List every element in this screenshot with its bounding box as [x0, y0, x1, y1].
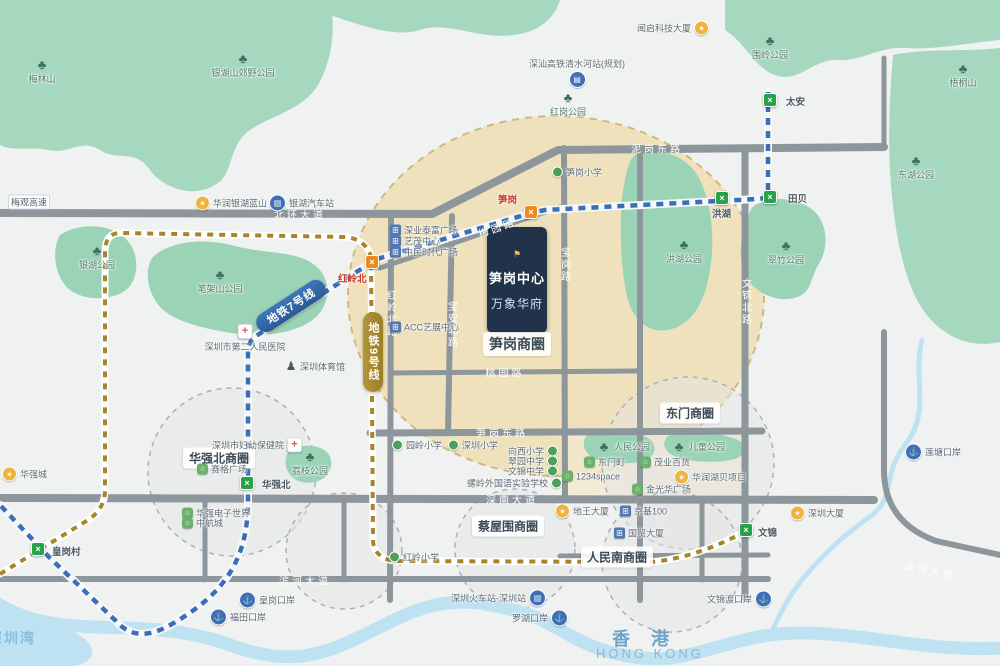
poi-shop: ⌂1234space — [562, 471, 620, 482]
metro-station-label: 笋岗 — [498, 192, 517, 206]
poi-label: 梅林山 — [28, 72, 55, 85]
district-label: 蔡屋围商圈 — [472, 516, 544, 537]
poi-tree: ♣围岭公园 — [752, 33, 788, 61]
poi-port: ⚓福田口岸 — [210, 609, 266, 626]
poi-label: 华润银湖蓝山 — [213, 197, 267, 210]
metro-station-label: 红岭北 — [338, 271, 367, 285]
yellow-icon: ★ — [555, 504, 570, 519]
building-icon: ⊞ — [614, 528, 625, 539]
poi-label: 深圳火车站-深圳站 — [451, 592, 526, 605]
poi-label: 东湖公园 — [898, 168, 934, 181]
train-icon: ▤ — [529, 590, 546, 607]
school-icon — [448, 440, 459, 451]
poi-label: 园岭小学 — [406, 439, 442, 452]
poi-label: 深圳市第二人民医院 — [204, 340, 285, 353]
hospital-icon: + — [287, 438, 302, 453]
poi-hospital: +深圳市妇幼保健院 — [212, 438, 302, 453]
road-taoyuan — [390, 371, 640, 373]
poi-tree: ♣梅林山 — [28, 57, 55, 85]
yellow-icon: ★ — [790, 506, 805, 521]
train-icon: ▤ — [569, 71, 586, 88]
poi-yellow: ★闻启科技大厦 — [637, 21, 709, 36]
poi-label: 华强城 — [20, 468, 47, 481]
shop-icon: ⌂ — [584, 457, 595, 468]
metro-station-皇岗村: × — [31, 542, 45, 556]
poi-bus: ▤银湖汽车站 — [269, 195, 334, 212]
tree-icon: ♣ — [236, 51, 250, 65]
metro-station-label: 太安 — [786, 94, 805, 108]
project-card: ⚑ 笋岗中心 万象华府 — [487, 227, 547, 333]
metro-station-红岭北: × — [365, 255, 379, 269]
shop-icon: ⌂ — [197, 464, 208, 475]
poi-tree: ♣洪湖公园 — [666, 237, 702, 265]
tree-icon: ♣ — [779, 238, 793, 252]
project-name-line2: 万象华府 — [491, 295, 543, 312]
poi-yellow: ★华强城 — [2, 467, 47, 482]
bus-icon: ▤ — [269, 195, 286, 212]
port-icon: ⚓ — [551, 610, 568, 627]
poi-label: 人民公园 — [614, 440, 650, 453]
poi-label: 文锦渡口岸 — [707, 593, 752, 606]
poi-label: 深圳体育馆 — [300, 360, 345, 373]
poi-school: 红岭小学 — [389, 551, 439, 564]
poi-tree: ♣银湖山郊野公园 — [211, 51, 274, 79]
poi-label: 银湖汽车站 — [289, 197, 334, 210]
yellow-icon: ★ — [195, 196, 210, 211]
poi-tree: ♣翠竹公园 — [768, 238, 804, 266]
project-name-line1: 笋岗中心 — [489, 268, 545, 287]
poi-tree: ♣人民公园 — [597, 439, 650, 453]
poi-tree: ♣荔枝公园 — [292, 449, 328, 477]
poi-school: 园岭小学 — [392, 439, 442, 452]
tree-icon: ♣ — [956, 61, 970, 75]
poi-label: 红岗公园 — [550, 105, 586, 118]
metro-station-太安: × — [763, 93, 777, 107]
poi-label: 红岭小学 — [403, 551, 439, 564]
poi-label: 笔架山公园 — [197, 282, 242, 295]
poi-tree: ♣东湖公园 — [898, 153, 934, 181]
metro-station-洪湖: × — [715, 191, 729, 205]
poi-port: ⚓莲塘口岸 — [905, 444, 961, 461]
poi-building: ⊞国贸大厦 — [614, 527, 664, 540]
poi-label: 围岭公园 — [752, 48, 788, 61]
poi-yellow: ★华润银湖蓝山 — [195, 196, 267, 211]
poi-sign: 梅观高速 — [8, 195, 50, 210]
poi-shop: ⌂东门町 — [584, 456, 625, 469]
metro-station-文锦: × — [739, 523, 753, 537]
poi-label: 深圳大厦 — [808, 507, 844, 520]
hospital-icon: + — [237, 324, 252, 339]
poi-label: 赛格广场 — [211, 463, 247, 476]
person-icon: ♟ — [285, 359, 297, 373]
shop-icon: ⌂ — [640, 457, 651, 468]
metro-station-田贝: × — [763, 190, 777, 204]
poi-yellow: ★地王大厦 — [555, 504, 609, 519]
poi-label: 华润湖贝项目 — [692, 471, 746, 484]
yellow-icon: ★ — [2, 467, 17, 482]
poi-port: ⚓皇岗口岸 — [239, 592, 295, 609]
poi-label: 银湖公园 — [79, 258, 115, 271]
project-logo-icon: ⚑ — [513, 249, 521, 260]
poi-label: 梅观高速 — [8, 195, 50, 210]
poi-shop: ⌂中航城 — [182, 517, 223, 530]
shenzhen-bay-label: 深圳湾 — [0, 628, 36, 648]
poi-school: 深圳小学 — [448, 439, 498, 452]
poi-label: 螺岭外国语实验学校 — [467, 477, 548, 490]
metro-station-label: 田贝 — [788, 191, 807, 205]
poi-yellow: ★深圳大厦 — [790, 506, 844, 521]
port-icon: ⚓ — [755, 591, 772, 608]
poi-school: 螺岭外国语实验学校 — [467, 477, 562, 490]
district-label: 笋岗商圈 — [483, 332, 551, 356]
tree-icon: ♣ — [213, 267, 227, 281]
district-label: 人民南商圈 — [581, 547, 653, 568]
poi-tree: ♣笔架山公园 — [197, 267, 242, 295]
shop-icon: ⌂ — [562, 471, 573, 482]
tree-icon: ♣ — [763, 33, 777, 47]
poi-label: 中航城 — [196, 517, 223, 530]
poi-label: 银湖山郊野公园 — [211, 66, 274, 79]
metro-station-华强北: × — [240, 476, 254, 490]
poi-tree: ♣梧桐山 — [949, 61, 976, 89]
poi-label: 闻启科技大厦 — [637, 22, 691, 35]
tree-icon: ♣ — [672, 439, 686, 453]
poi-yellow: ★华润湖贝项目 — [674, 470, 746, 485]
building-icon: ⊞ — [390, 322, 401, 333]
poi-label: 深圳小学 — [462, 439, 498, 452]
metro-station-label: 洪湖 — [712, 206, 731, 220]
poi-building: ⊞京基100 — [620, 505, 667, 518]
poi-label: 京基100 — [634, 505, 667, 518]
poi-label: 茂业百货 — [654, 456, 690, 469]
tree-icon: ♣ — [597, 439, 611, 453]
yellow-icon: ★ — [674, 470, 689, 485]
metro-station-笋岗: × — [524, 205, 538, 219]
tree-icon: ♣ — [561, 90, 575, 104]
poi-tree: ♣红岗公园 — [550, 90, 586, 118]
tree-icon: ♣ — [909, 153, 923, 167]
poi-label: 福田口岸 — [230, 611, 266, 624]
poi-label: 洪湖公园 — [666, 252, 702, 265]
poi-label: 中民时代广场 — [404, 246, 458, 259]
poi-label: 梧桐山 — [949, 76, 976, 89]
poi-port: ⚓罗湖口岸 — [512, 610, 568, 627]
school-icon — [547, 466, 558, 477]
poi-building: ⊞ACC艺展中心 — [390, 321, 459, 334]
poi-label: 深汕高铁清水河站(规划) — [529, 57, 625, 70]
building-icon: ⊞ — [620, 506, 631, 517]
yellow-icon: ★ — [694, 21, 709, 36]
tree-icon: ♣ — [90, 243, 104, 257]
poi-label: 国贸大厦 — [628, 527, 664, 540]
school-icon — [551, 478, 562, 489]
poi-tree: ♣儿童公园 — [672, 439, 725, 453]
port-icon: ⚓ — [239, 592, 256, 609]
poi-label: 皇岗口岸 — [259, 594, 295, 607]
metro-station-label: 华强北 — [262, 477, 291, 491]
poi-label: 东门町 — [598, 456, 625, 469]
poi-label: 莲塘口岸 — [925, 446, 961, 459]
poi-person: ♟深圳体育馆 — [285, 359, 345, 373]
road-baogang — [564, 148, 565, 499]
poi-label: ACC艺展中心 — [404, 321, 459, 334]
poi-label: 1234space — [576, 471, 620, 481]
poi-train: ▤深汕高铁清水河站(规划) — [529, 57, 625, 88]
poi-label: 笋岗小学 — [566, 166, 602, 179]
metro-line9-pill: 地铁9号线 — [363, 312, 383, 392]
metro-station-label: 文锦 — [758, 525, 777, 539]
port-icon: ⚓ — [210, 609, 227, 626]
poi-label: 翠竹公园 — [768, 253, 804, 266]
poi-school: 笋岗小学 — [552, 166, 602, 179]
poi-hospital: +深圳市第二人民医院 — [204, 324, 285, 353]
poi-label: 深圳市妇幼保健院 — [212, 439, 284, 452]
shop-icon: ⌂ — [632, 484, 643, 495]
metro-station-label: 皇岗村 — [52, 544, 81, 558]
poi-label: 荔枝公园 — [292, 464, 328, 477]
poi-port: ⚓文锦渡口岸 — [707, 591, 772, 608]
poi-label: 地王大厦 — [573, 505, 609, 518]
poi-shop: ⌂赛格广场 — [197, 463, 247, 476]
poi-tree: ♣银湖公园 — [79, 243, 115, 271]
district-label: 东门商圈 — [660, 403, 720, 424]
tree-icon: ♣ — [677, 237, 691, 251]
tree-icon: ♣ — [303, 449, 317, 463]
port-icon: ⚓ — [905, 444, 922, 461]
school-icon — [552, 167, 563, 178]
poi-train: ▤深圳火车站-深圳站 — [451, 590, 546, 607]
road-hongling-north — [390, 214, 391, 600]
school-icon — [389, 552, 400, 563]
poi-label: 罗湖口岸 — [512, 612, 548, 625]
poi-building: ⊞中民时代广场 — [390, 246, 458, 259]
tree-icon: ♣ — [35, 57, 49, 71]
location-map: ⚑ 笋岗中心 万象华府 地铁7号线 地铁9号线 香 港 HONG KONG 深圳… — [0, 0, 1000, 666]
poi-shop: ⌂茂业百货 — [640, 456, 690, 469]
poi-label: 儿童公园 — [689, 440, 725, 453]
hongkong-en-label: HONG KONG — [596, 646, 704, 661]
school-icon — [392, 440, 403, 451]
shop-icon: ⌂ — [182, 518, 193, 529]
building-icon: ⊞ — [390, 247, 401, 258]
